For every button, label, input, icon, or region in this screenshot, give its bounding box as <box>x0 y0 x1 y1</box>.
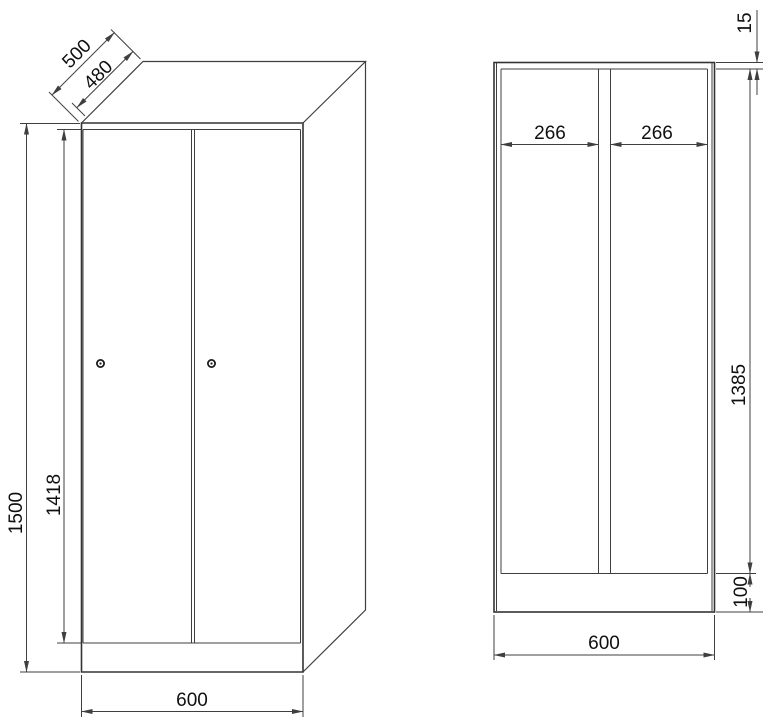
dimension-right-compartment: 266 <box>611 123 708 145</box>
extension-line <box>49 92 79 122</box>
perspective-view: 500 480 1500 1418 600 <box>6 30 366 718</box>
dimension-width-perspective: 600 <box>82 675 304 717</box>
dimension-top-panel-thickness: 15 <box>716 10 763 95</box>
dimension-label-1385: 1385 <box>729 364 750 406</box>
locker-dimension-drawing: 500 480 1500 1418 600 <box>0 0 776 728</box>
dimension-label-100: 100 <box>731 576 752 608</box>
dimension-label-1418: 1418 <box>44 474 65 516</box>
dimension-label-600-right: 600 <box>588 633 620 654</box>
top-face-outline <box>82 62 366 124</box>
dimension-label-15: 15 <box>735 12 756 33</box>
dimension-label-266-left: 266 <box>534 123 566 144</box>
extension-line <box>111 30 141 60</box>
dimension-interior-height: 1385 <box>716 69 756 574</box>
dimension-label-500: 500 <box>58 35 95 72</box>
front-elevation-view: 266 266 15 1385 100 <box>494 10 763 660</box>
extension-line <box>72 103 85 116</box>
dimension-door-height: 1418 <box>44 130 81 644</box>
dimension-height-total: 1500 <box>6 124 80 673</box>
right-door-lock-icon <box>208 360 215 367</box>
dimension-left-compartment: 266 <box>501 123 599 145</box>
front-face-outline <box>82 123 304 672</box>
side-face-outline <box>303 62 366 673</box>
technical-drawing-canvas: 500 480 1500 1418 600 <box>0 0 776 728</box>
left-door-lock-icon <box>97 360 104 367</box>
dimension-label-1500: 1500 <box>6 492 27 534</box>
dimension-plinth-height: 100 <box>716 574 763 613</box>
dimension-width-elevation: 600 <box>494 615 715 660</box>
dimension-label-600-left: 600 <box>176 690 208 711</box>
dimension-label-266-right: 266 <box>641 123 673 144</box>
